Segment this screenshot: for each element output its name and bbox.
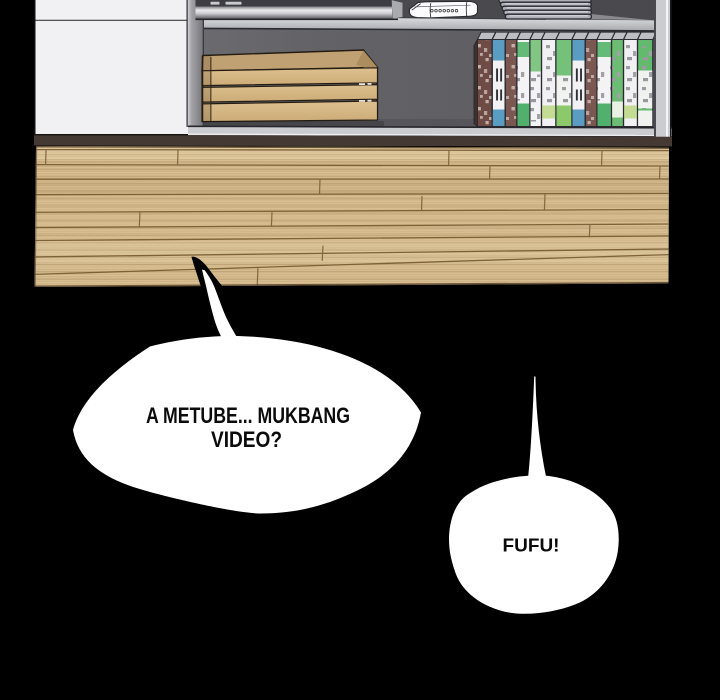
svg-text:VIDEO?: VIDEO? [211,427,282,452]
svg-text:A METUBE... MUKBANG: A METUBE... MUKBANG [146,403,350,428]
svg-text:FUFU!: FUFU! [503,535,560,556]
